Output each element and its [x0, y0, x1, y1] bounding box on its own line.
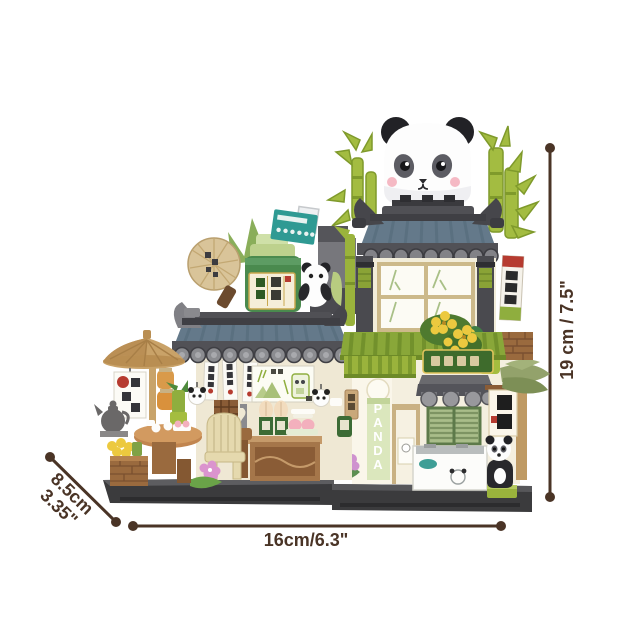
svg-text:N: N — [373, 429, 382, 444]
svg-text:16cm/6.3": 16cm/6.3" — [264, 530, 349, 550]
svg-text:A: A — [373, 415, 383, 430]
svg-text:P: P — [374, 401, 383, 416]
svg-text:D: D — [373, 443, 382, 458]
svg-text:A: A — [373, 457, 383, 472]
svg-text:19 cm / 7.5": 19 cm / 7.5" — [557, 280, 577, 380]
